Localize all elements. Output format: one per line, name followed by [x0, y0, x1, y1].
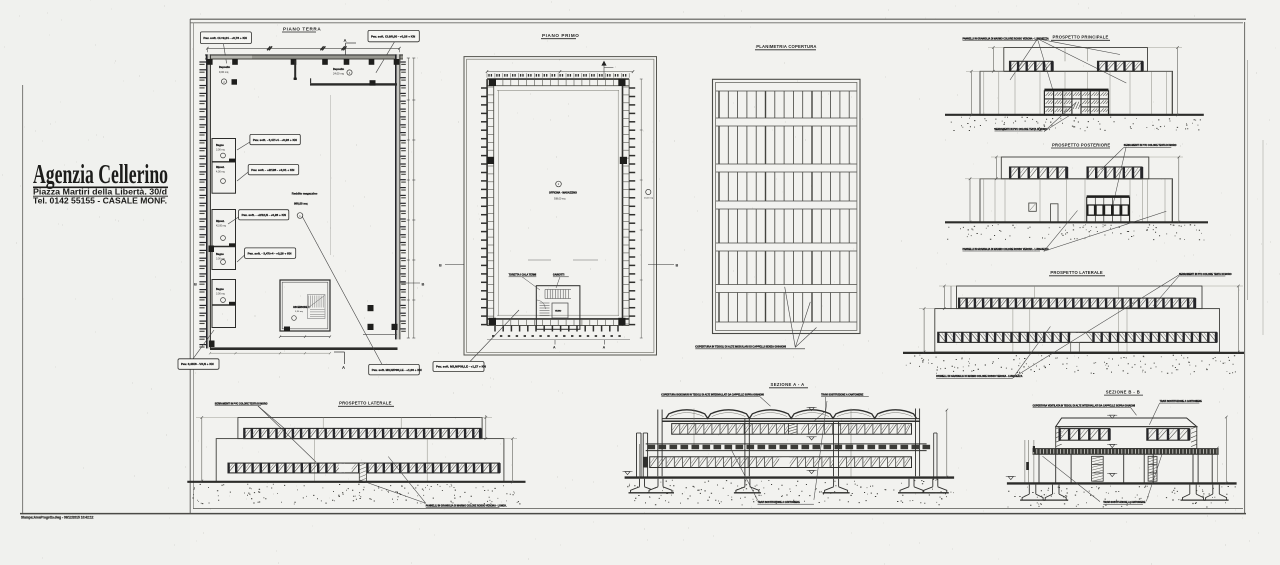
svg-text:TRAVI SOSTITUZIONE A CANTONIER: TRAVI SOSTITUZIONE A CANTONIERE — [821, 394, 864, 397]
svg-text:Bagno: Bagno — [216, 288, 224, 291]
svg-text:SERRAMENTI IN PVC COLORE TESTA: SERRAMENTI IN PVC COLORE TESTA DI MORO — [995, 128, 1048, 131]
svg-text:Pav. soft. Cl.=9,24 - +0,78 +: Pav. soft. Cl.=9,24 - +0,78 + KN — [203, 36, 246, 40]
svg-text:4,00 mq: 4,00 mq — [216, 171, 225, 174]
svg-text:PANNELLI IN GRANIGLIA DI MARMO: PANNELLI IN GRANIGLIA DI MARMO COLORE RO… — [936, 375, 1023, 378]
svg-text:PIANO TERRA: PIANO TERRA — [283, 27, 321, 32]
svg-text:3,30 mq: 3,30 mq — [295, 311, 304, 313]
svg-text:Ripost.: Ripost. — [216, 166, 225, 169]
svg-text:A: A — [342, 365, 345, 370]
svg-text:A: A — [603, 346, 606, 350]
svg-text:GAINOTTI: GAINOTTI — [553, 274, 565, 277]
svg-text:3,00 mq: 3,00 mq — [216, 149, 225, 152]
svg-text:PROSPETTO PRINCIPALE: PROSPETTO PRINCIPALE — [1053, 35, 1109, 40]
svg-text:COPERTURA IN TEGOLI DI ALTE MO: COPERTURA IN TEGOLI DI ALTE MODULARI DI … — [695, 346, 786, 349]
svg-text:Deposito: Deposito — [333, 67, 345, 71]
svg-text:SERRAMENTI IN PVC COLORE TESTA: SERRAMENTI IN PVC COLORE TESTA DI MORO — [1179, 273, 1232, 276]
svg-text:SERRAMENTI IN PVC COLORE TESTA: SERRAMENTI IN PVC COLORE TESTA DI MORO — [1124, 144, 1177, 147]
svg-text:Stampa:AreaProgetto.dwg - 09/1: Stampa:AreaProgetto.dwg - 09/12/2015 10:… — [21, 516, 94, 520]
svg-text:COPERTURA VENTILATA IN TEGOLI: COPERTURA VENTILATA IN TEGOLI DI ALTE IN… — [1033, 405, 1136, 408]
svg-text:42,00 mq: 42,00 mq — [216, 225, 227, 228]
svg-text:04,00 mq: 04,00 mq — [644, 198, 654, 200]
svg-text:B: B — [676, 264, 679, 268]
svg-text:SEZIONE B - B: SEZIONE B - B — [1106, 389, 1141, 394]
svg-text:TRAVI SOSTITUZIONE A CANTONIER: TRAVI SOSTITUZIONE A CANTONIERE — [1160, 400, 1203, 403]
svg-text:VANO: VANO — [555, 310, 561, 313]
svg-text:COPERTURA ISODOMUS IN TEGOLI D: COPERTURA ISODOMUS IN TEGOLI DI ALTE INT… — [661, 394, 764, 397]
svg-text:PROSPETTO LATERALE: PROSPETTO LATERALE — [339, 401, 392, 406]
svg-text:A: A — [553, 346, 556, 350]
svg-text:Agenzia Cellerino: Agenzia Cellerino — [33, 159, 168, 189]
svg-text:B: B — [194, 282, 197, 287]
svg-text:TRAVI SOSTITUZIONE A CANTONIER: TRAVI SOSTITUZIONE A CANTONIERE — [758, 501, 801, 504]
svg-text:938,00 mq: 938,00 mq — [554, 198, 566, 201]
svg-text:PANNELLI IN GRANIGLIA DI MARMO: PANNELLI IN GRANIGLIA DI MARMO COLORE RO… — [426, 504, 507, 507]
svg-text:OFFICINA - MAGAZZINO: OFFICINA - MAGAZZINO — [549, 192, 577, 195]
svg-text:Pav. 3,4K/8 - V3,N + KN: Pav. 3,4K/8 - V3,N + KN — [181, 362, 214, 366]
svg-text:968,00 mq: 968,00 mq — [294, 202, 308, 206]
svg-text:Pav. soft. - 3,47/+4 - +0,26 +: Pav. soft. - 3,47/+4 - +0,26 + KN — [253, 138, 297, 142]
svg-text:Bagno: Bagno — [216, 253, 224, 256]
svg-text:Pav. soft. M3,N/P08,LE - +1,27: Pav. soft. M3,N/P08,LE - +1,27 + KN — [436, 365, 486, 369]
svg-text:Deposito: Deposito — [219, 65, 231, 69]
svg-text:PROSPETTO POSTERIORE: PROSPETTO POSTERIORE — [1052, 142, 1110, 147]
svg-text:B: B — [422, 282, 425, 287]
svg-text:Reddito magazzino: Reddito magazzino — [292, 191, 318, 195]
svg-text:24,00 mq: 24,00 mq — [333, 72, 344, 76]
svg-text:TORETTA I CALA TERMI: TORETTA I CALA TERMI — [509, 274, 537, 277]
svg-text:Pav. soft. Cl.9/0,00 - +0,26 +: Pav. soft. Cl.9/0,00 - +0,26 + KN — [371, 34, 415, 38]
svg-text:9,00 mq: 9,00 mq — [219, 70, 229, 74]
svg-text:Bagno: Bagno — [216, 144, 224, 147]
svg-text:A: A — [344, 38, 347, 43]
svg-text:SEZIONE A - A: SEZIONE A - A — [771, 382, 805, 387]
svg-text:PROSPETTO LATERALE: PROSPETTO LATERALE — [1050, 270, 1103, 275]
svg-text:SERRAMENTI IN PVC COLORE TESTA: SERRAMENTI IN PVC COLORE TESTA DI MORO — [215, 402, 268, 405]
svg-text:PIANO PRIMO: PIANO PRIMO — [542, 33, 579, 38]
svg-text:B: B — [439, 264, 442, 268]
svg-text:Pav. soft. - +2/128 - +0,31 +: Pav. soft. - +2/128 - +0,31 + KN — [251, 168, 294, 172]
svg-text:TRAVI SOSTITUZIONE A CANTONIER: TRAVI SOSTITUZIONE A CANTONIERE — [1103, 501, 1146, 504]
svg-text:PANNELLI IN GRANIGLIA DI MARMO: PANNELLI IN GRANIGLIA DI MARMO COLORE RO… — [963, 38, 1050, 41]
svg-text:Pav. soft. - +2/12,N - +0,26 +: Pav. soft. - +2/12,N - +0,26 + KN — [242, 213, 286, 217]
svg-text:Ripost.: Ripost. — [216, 220, 225, 223]
svg-text:PANNELLI IN GRANIGLIA DI MARMO: PANNELLI IN GRANIGLIA DI MARMO COLORE RO… — [963, 248, 1050, 251]
svg-text:Tel. 0142 55155 - CASALE MONF.: Tel. 0142 55155 - CASALE MONF. — [33, 196, 167, 206]
svg-text:3,00 mq: 3,00 mq — [216, 293, 225, 296]
svg-text:PLANIMETRIA COPERTURA: PLANIMETRIA COPERTURA — [756, 44, 816, 49]
svg-text:Pav. soft. - 3,47/+4 - +0,26 +: Pav. soft. - 3,47/+4 - +0,26 + KN — [248, 251, 292, 255]
svg-text:Pav. soft. M3,N/P08,LE - +1,00: Pav. soft. M3,N/P08,LE - +1,00 + KN — [372, 368, 422, 372]
